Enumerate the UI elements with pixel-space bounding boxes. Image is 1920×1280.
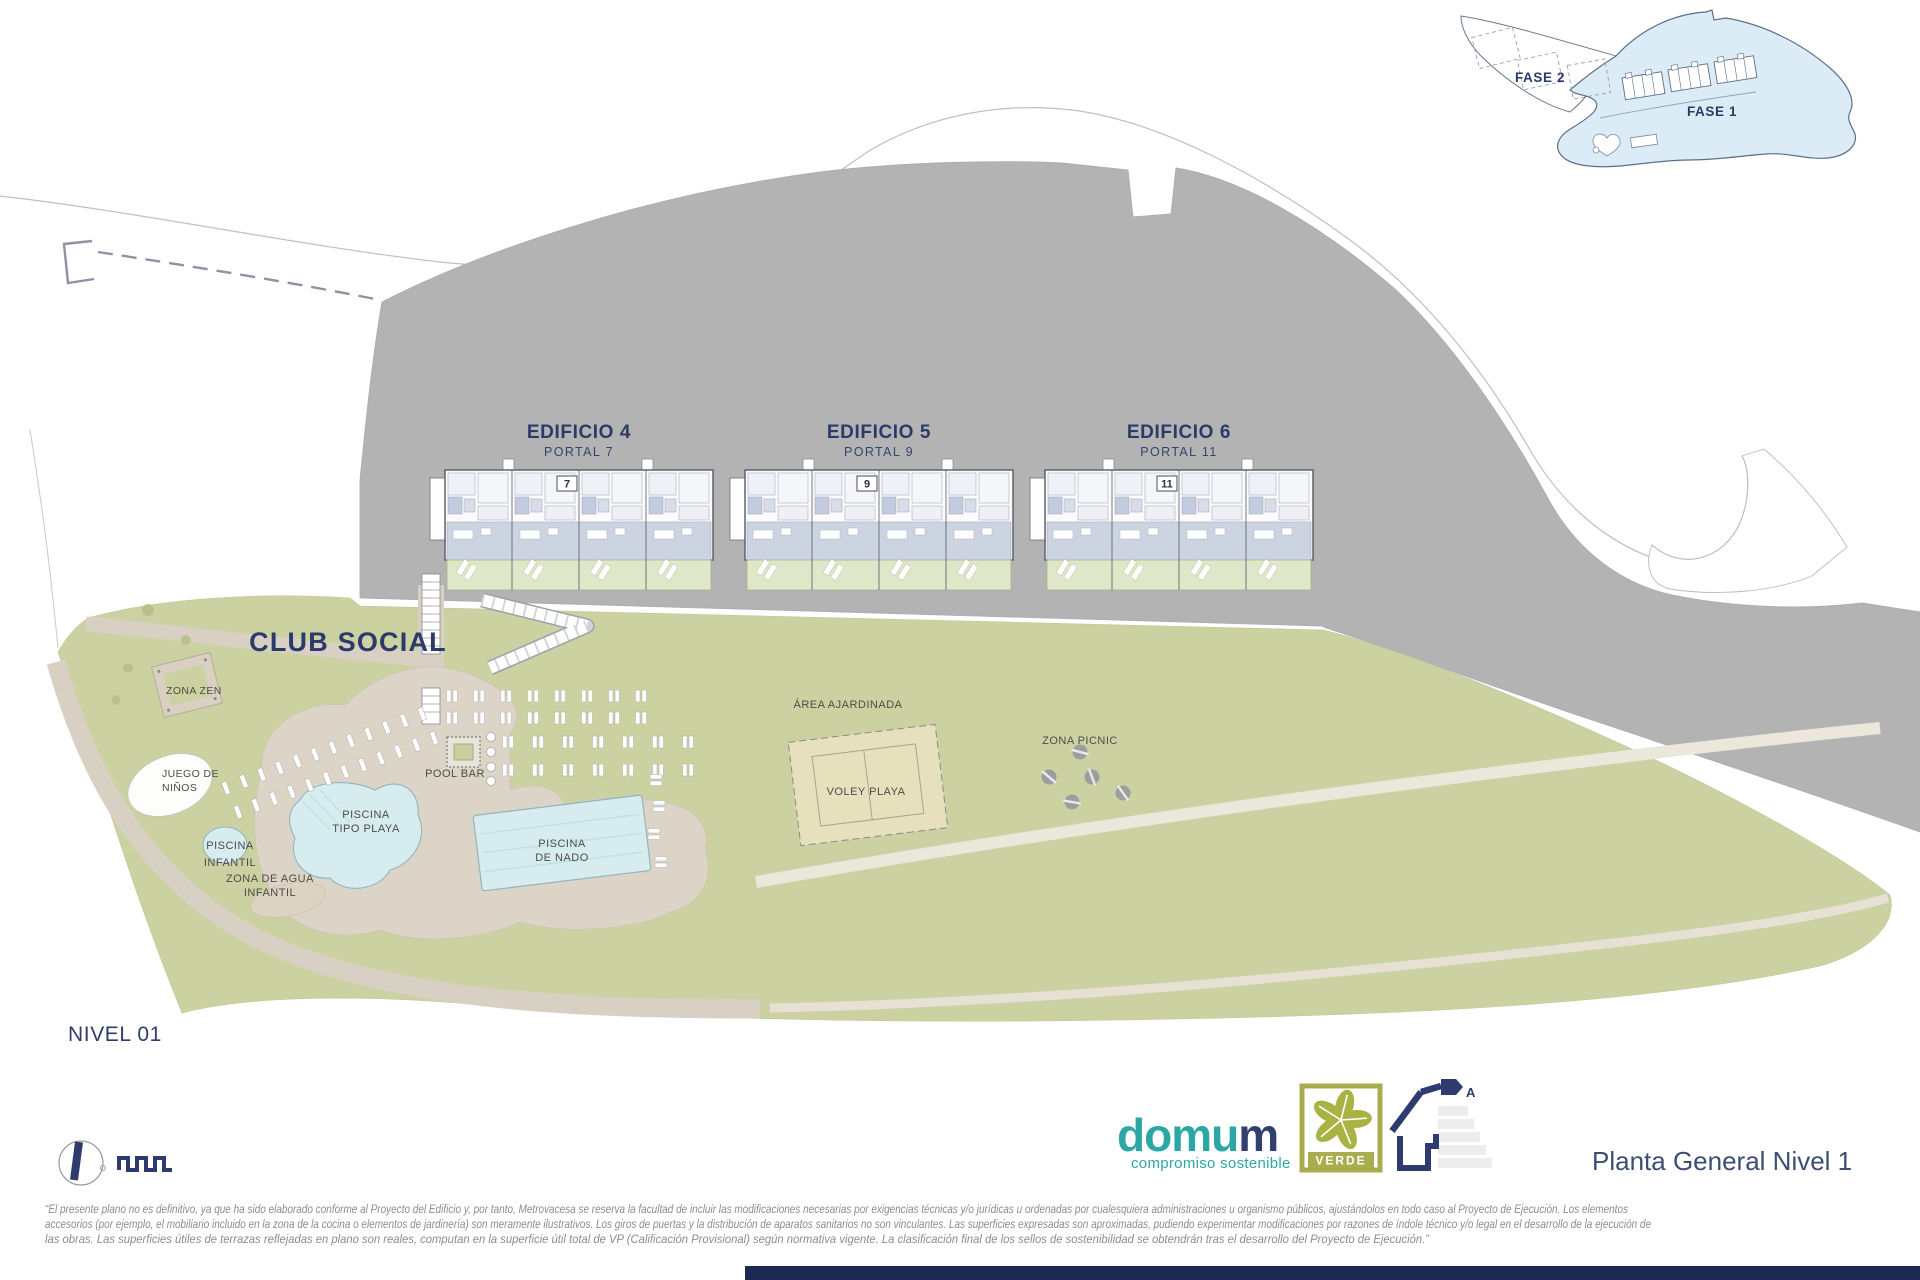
- pool-bar-structure: [447, 737, 480, 767]
- portal-plate-6: 11: [1161, 479, 1173, 491]
- voley-court: [788, 724, 948, 845]
- brand-logo: domum compromiso sostenible: [1117, 1109, 1291, 1172]
- playground-label-2: NIÑOS: [162, 781, 197, 794]
- piscina-infantil-label-2: INFANTIL: [204, 857, 256, 869]
- zona-agua-label-2: INFANTIL: [244, 887, 296, 899]
- piscina-nado-label-2: DE NADO: [535, 852, 589, 864]
- building-label-6: EDIFICIO 6: [1127, 422, 1231, 443]
- building-label-4: EDIFICIO 4: [527, 422, 631, 443]
- portal-label-4: PORTAL 7: [544, 445, 614, 459]
- scale-bar-icon: [119, 1158, 172, 1170]
- disclaimer-line-1: “El presente plano no es definitivo, ya …: [45, 1203, 1628, 1216]
- inset-map: FASE 2 FASE 1: [1461, 10, 1855, 167]
- boundary-jog: [64, 241, 94, 283]
- north-arrow-icon: [59, 1141, 106, 1185]
- building-edificio-5: [730, 459, 1013, 590]
- portal-label-6: PORTAL 11: [1140, 445, 1217, 459]
- verde-badge: VERDE: [1302, 1086, 1380, 1170]
- plan-title: Planta General Nivel 1: [1592, 1146, 1852, 1176]
- inset-fase2-label: FASE 2: [1515, 70, 1565, 85]
- piscina-playa-label-1: PISCINA: [342, 809, 390, 821]
- building-label-5: EDIFICIO 5: [827, 422, 931, 443]
- inset-fase1-label: FASE 1: [1687, 104, 1737, 119]
- piscina-nado-label-1: PISCINA: [538, 838, 586, 850]
- portal-plate-5: 9: [864, 479, 870, 491]
- energy-house-icon: A: [1392, 1079, 1492, 1168]
- brand-name: domum: [1117, 1109, 1278, 1161]
- site-plan-svg: 7 9 11 EDIFICIO 4 PORTAL 7 EDIFICIO 5 PO…: [0, 0, 1920, 1280]
- building-edificio-4: [430, 459, 713, 590]
- disclaimer-line-2: accesorios (por ejemplo, el mobiliario i…: [45, 1218, 1651, 1231]
- disclaimer-line-3: las obras. Las superficies útiles de ter…: [45, 1233, 1430, 1246]
- level-label: NIVEL 01: [68, 1023, 162, 1046]
- pool-bar-label: POOL BAR: [425, 768, 485, 780]
- bottom-bar: [745, 1266, 1920, 1280]
- portal-label-5: PORTAL 9: [844, 445, 914, 459]
- zona-zen-label: ZONA ZEN: [166, 685, 222, 697]
- verde-badge-label: VERDE: [1315, 1154, 1366, 1168]
- brand-tagline: compromiso sostenible: [1131, 1155, 1291, 1172]
- zona-agua-label-1: ZONA DE AGUA: [226, 873, 314, 885]
- voley-playa-label: VOLEY PLAYA: [827, 786, 906, 798]
- piscina-infantil-label-1: PISCINA: [206, 840, 254, 852]
- brand-name-primary: domu: [1117, 1109, 1238, 1161]
- brand-name-accent: m: [1238, 1109, 1278, 1161]
- playground-label-1: JUEGO DE: [162, 768, 219, 780]
- energy-rating-label: A: [1466, 1085, 1476, 1100]
- road-hook: [1649, 449, 1847, 593]
- area-ajardinada-label: ÁREA AJARDINADA: [794, 698, 903, 711]
- club-social-label: CLUB SOCIAL: [249, 627, 447, 657]
- portal-plate-4: 7: [564, 479, 570, 491]
- zona-picnic-label: ZONA PICNIC: [1042, 735, 1118, 747]
- piscina-playa-label-2: TIPO PLAYA: [332, 823, 400, 835]
- site-boundary-dashed: [98, 252, 380, 300]
- plan-page: 7 9 11 EDIFICIO 4 PORTAL 7 EDIFICIO 5 PO…: [0, 0, 1920, 1280]
- west-boundary-line: [30, 430, 58, 648]
